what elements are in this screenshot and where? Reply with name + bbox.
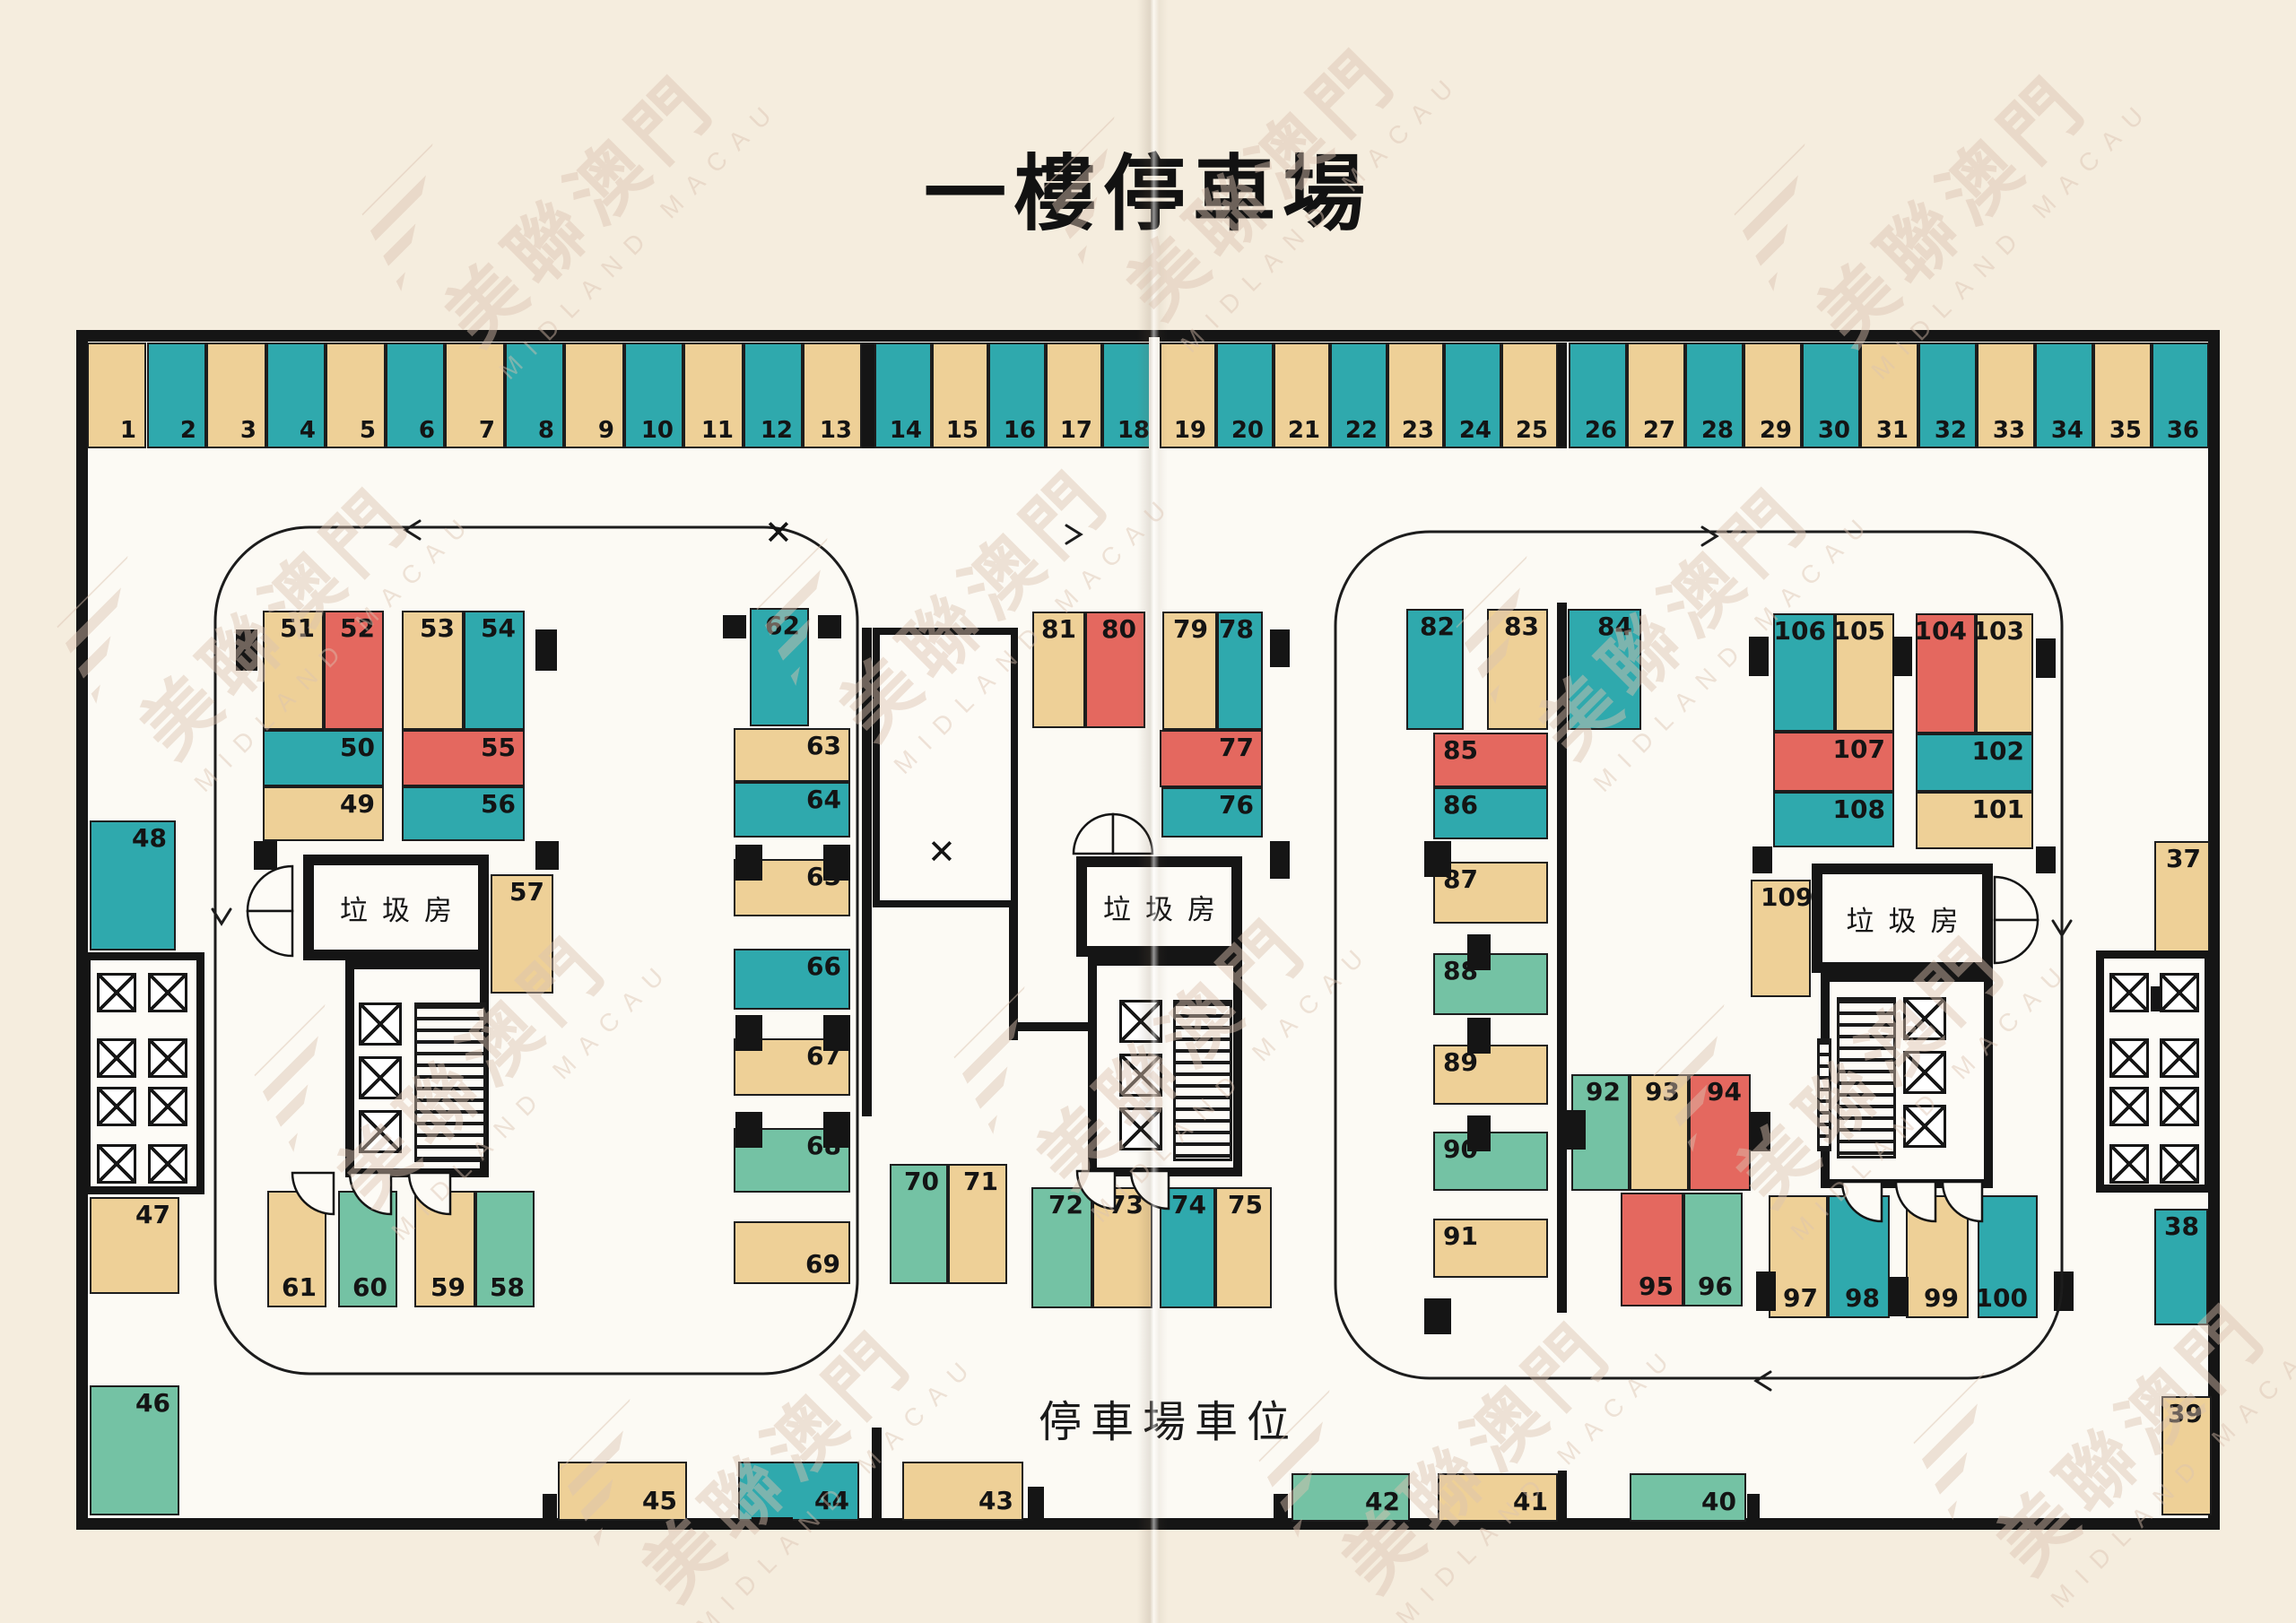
elevator-icon: [2109, 1038, 2149, 1078]
stall-109: 109: [1751, 880, 1811, 997]
stall-number-14: 14: [890, 419, 922, 442]
stall-number-7: 7: [479, 419, 495, 442]
stall-66: 66: [734, 949, 850, 1010]
stall-103: 103: [1976, 613, 2033, 733]
stall-59: 59: [414, 1191, 475, 1307]
elevator-icon: [359, 1002, 402, 1046]
midland-logo-icon: [1734, 143, 1844, 291]
elevator-icon: [97, 1038, 136, 1078]
stall-number-80: 80: [1101, 617, 1136, 642]
stall-39: 39: [2161, 1396, 2212, 1515]
stall-number-52: 52: [340, 616, 375, 641]
column-marker: [1756, 1271, 1776, 1311]
garbage-room-label: 垃圾房: [1832, 898, 1973, 939]
stall-29: 29: [1744, 343, 1802, 448]
stall-56: 56: [402, 786, 525, 841]
stall-number-35: 35: [2109, 419, 2142, 442]
column-marker: [1467, 934, 1491, 970]
stall-number-83: 83: [1504, 614, 1539, 639]
stall-number-60: 60: [352, 1275, 387, 1300]
stall-number-4: 4: [300, 419, 316, 442]
stall-number-39: 39: [2168, 1402, 2203, 1427]
stall-number-98: 98: [1845, 1286, 1880, 1311]
garbage-room: 垃圾房: [1812, 864, 1993, 973]
stall-84: 84: [1568, 609, 1641, 730]
stall-number-32: 32: [1935, 419, 1967, 442]
stall-55: 55: [402, 730, 525, 786]
stall-number-50: 50: [340, 735, 375, 760]
wall-segment: [1009, 907, 1018, 1040]
stall-70: 70: [890, 1164, 948, 1284]
stall-42: 42: [1291, 1473, 1410, 1522]
stall-number-103: 103: [1972, 619, 2024, 644]
stall-number-97: 97: [1783, 1286, 1818, 1311]
column-marker: [2036, 638, 2056, 678]
stall-90: 90: [1433, 1132, 1548, 1191]
stall-number-48: 48: [132, 826, 167, 851]
midland-watermark: 美聯澳門MIDLAND MACAU: [1725, 0, 2159, 386]
stall-46: 46: [90, 1385, 179, 1515]
stall-number-56: 56: [481, 792, 516, 817]
elevator-icon: [97, 1144, 136, 1184]
stall-51: 51: [263, 611, 324, 730]
stall-number-1: 1: [120, 419, 136, 442]
stall-107: 107: [1773, 732, 1894, 792]
wall-segment: [862, 628, 872, 1116]
stall-number-72: 72: [1048, 1193, 1083, 1218]
stall-24: 24: [1444, 343, 1501, 448]
stall-28: 28: [1685, 343, 1744, 448]
stall-number-34: 34: [2051, 419, 2083, 442]
stall-number-69: 69: [805, 1252, 840, 1277]
stall-74: 74: [1160, 1187, 1215, 1308]
column-marker: [1749, 1112, 1770, 1151]
stall-12: 12: [744, 343, 803, 448]
scanned-floorplan-page: 一樓停車場 停車場車位 1234567891011121314151617181…: [0, 0, 2296, 1623]
stall-81: 81: [1032, 612, 1085, 728]
stall-number-47: 47: [135, 1202, 170, 1228]
stall-number-85: 85: [1443, 738, 1478, 763]
column-marker: [236, 629, 257, 671]
stall-60: 60: [338, 1191, 397, 1307]
column-marker: [735, 845, 762, 881]
stall-number-42: 42: [1365, 1489, 1400, 1515]
stall-30: 30: [1802, 343, 1860, 448]
stall-82: 82: [1406, 609, 1464, 730]
column-marker: [823, 1112, 850, 1148]
stall-number-86: 86: [1443, 793, 1478, 818]
garbage-room-label: 垃圾房: [1089, 887, 1230, 927]
stall-number-75: 75: [1228, 1193, 1263, 1218]
wall-segment: [1557, 603, 1567, 1313]
column-marker: [1889, 1277, 1909, 1316]
stall-94: 94: [1689, 1074, 1751, 1191]
stall-20: 20: [1216, 343, 1274, 448]
stall-25: 25: [1501, 343, 1558, 448]
wall-segment: [1558, 343, 1567, 448]
stall-89: 89: [1433, 1045, 1548, 1105]
stall-number-27: 27: [1643, 419, 1675, 442]
stall-number-20: 20: [1231, 419, 1264, 442]
stall-number-62: 62: [765, 613, 800, 638]
stall-86: 86: [1433, 787, 1548, 839]
stall-108: 108: [1773, 792, 1894, 847]
stall-number-70: 70: [904, 1169, 939, 1194]
column-marker: [1566, 1110, 1586, 1150]
stall-91: 91: [1433, 1219, 1548, 1278]
stall-number-81: 81: [1041, 617, 1076, 642]
stall-6: 6: [386, 343, 445, 448]
elevator-icon: [1903, 1105, 1946, 1148]
stall-number-51: 51: [280, 616, 315, 641]
stall-73: 73: [1092, 1187, 1152, 1308]
stall-number-45: 45: [642, 1488, 677, 1514]
column-marker: [1028, 1487, 1044, 1521]
stall-number-61: 61: [282, 1275, 317, 1300]
stall-number-54: 54: [481, 616, 516, 641]
column-marker: [1467, 1018, 1491, 1054]
elevator-icon: [2160, 1087, 2199, 1126]
stall-83: 83: [1487, 609, 1548, 730]
stall-number-101: 101: [1972, 797, 2024, 822]
stall-number-96: 96: [1698, 1274, 1733, 1299]
column-marker: [2036, 846, 2056, 873]
garbage-room: 垃圾房: [303, 855, 489, 960]
elevator-icon: [1903, 1051, 1946, 1094]
stall-number-38: 38: [2164, 1214, 2199, 1239]
stair-hatch: [1817, 1038, 1831, 1151]
stall-number-49: 49: [340, 792, 375, 817]
stall-48: 48: [90, 820, 176, 950]
stall-number-29: 29: [1760, 419, 1792, 442]
stall-38: 38: [2154, 1209, 2208, 1325]
stall-number-41: 41: [1513, 1489, 1548, 1515]
stall-number-11: 11: [701, 419, 734, 442]
stall-95: 95: [1621, 1193, 1683, 1306]
stall-number-24: 24: [1459, 419, 1492, 442]
garbage-room: 垃圾房: [1076, 856, 1242, 957]
stall-105: 105: [1835, 613, 1894, 732]
stall-number-19: 19: [1174, 419, 1206, 442]
stall-80: 80: [1085, 612, 1145, 728]
parking-area-label: 停車場車位: [1039, 1386, 1299, 1449]
stall-93: 93: [1630, 1074, 1689, 1191]
stall-number-82: 82: [1420, 614, 1455, 639]
stall-number-55: 55: [481, 735, 516, 760]
stall-45: 45: [558, 1462, 687, 1521]
stall-97: 97: [1769, 1195, 1828, 1318]
elevator-icon: [148, 973, 187, 1012]
stall-72: 72: [1031, 1187, 1092, 1308]
stall-27: 27: [1627, 343, 1685, 448]
lane-x-mark: ✕: [927, 832, 963, 868]
watermark-cjk-text: 美聯澳門: [417, 45, 737, 365]
stall-33: 33: [1977, 343, 2035, 448]
stall-47: 47: [90, 1197, 179, 1294]
stall-96: 96: [1683, 1193, 1743, 1306]
page-title: 一樓停車場: [924, 127, 1372, 247]
stall-number-53: 53: [420, 616, 455, 641]
stall-79: 79: [1162, 612, 1217, 730]
stall-number-21: 21: [1288, 419, 1320, 442]
elevator-icon: [2160, 973, 2199, 1012]
stall-63: 63: [734, 728, 850, 782]
stall-number-25: 25: [1516, 419, 1548, 442]
stall-104: 104: [1916, 613, 1976, 733]
elevator-icon: [2160, 1144, 2199, 1184]
column-marker: [818, 615, 841, 638]
stall-99: 99: [1906, 1195, 1969, 1318]
column-marker: [1747, 1494, 1760, 1523]
stall-number-102: 102: [1972, 739, 2024, 764]
stall-101: 101: [1916, 792, 2033, 849]
elevator-icon: [2109, 1087, 2149, 1126]
stall-number-104: 104: [1915, 619, 1967, 644]
stall-36: 36: [2152, 343, 2209, 448]
column-marker: [1749, 637, 1769, 676]
stall-number-109: 109: [1761, 885, 1813, 910]
stall-number-40: 40: [1701, 1489, 1736, 1515]
stall-31: 31: [1860, 343, 1918, 448]
stall-number-17: 17: [1060, 419, 1092, 442]
elevator-icon: [1119, 1000, 1162, 1043]
stall-3: 3: [206, 343, 266, 448]
stall-19: 19: [1160, 343, 1216, 448]
stall-41: 41: [1438, 1473, 1558, 1522]
elevator-icon: [2160, 1038, 2199, 1078]
stall-number-93: 93: [1645, 1080, 1680, 1105]
stall-number-99: 99: [1924, 1286, 1959, 1311]
column-marker: [535, 629, 557, 671]
stall-85: 85: [1433, 733, 1548, 787]
midland-watermark: 美聯澳門MIDLAND MACAU: [352, 0, 787, 386]
garbage-room-label: 垃圾房: [326, 888, 466, 928]
stall-number-107: 107: [1833, 737, 1885, 762]
stall-10: 10: [624, 343, 683, 448]
stall-78: 78: [1217, 612, 1263, 730]
stall-number-6: 6: [419, 419, 435, 442]
stall-number-84: 84: [1597, 614, 1632, 639]
stall-1: 1: [87, 343, 146, 448]
stall-number-105: 105: [1833, 619, 1885, 644]
stall-number-100: 100: [1976, 1286, 2028, 1311]
elevator-icon: [1119, 1107, 1162, 1150]
column-marker: [823, 845, 850, 881]
stall-number-92: 92: [1586, 1080, 1621, 1105]
stall-number-77: 77: [1219, 735, 1254, 760]
stall-number-28: 28: [1701, 419, 1734, 442]
stall-number-66: 66: [806, 954, 841, 979]
stall-50: 50: [263, 730, 384, 786]
stall-13: 13: [803, 343, 862, 448]
stall-57: 57: [491, 874, 553, 994]
stall-number-74: 74: [1171, 1193, 1206, 1218]
stall-77: 77: [1160, 730, 1263, 787]
column-marker: [1892, 637, 1912, 676]
stall-number-64: 64: [806, 787, 841, 812]
stall-number-89: 89: [1443, 1050, 1478, 1075]
midland-logo-icon: [361, 143, 472, 291]
column-marker: [1274, 1494, 1288, 1523]
column-marker: [535, 841, 559, 870]
elevator-icon: [359, 1110, 402, 1153]
stall-number-3: 3: [240, 419, 257, 442]
stall-number-79: 79: [1173, 617, 1208, 642]
column-marker: [735, 1015, 762, 1051]
stall-43: 43: [902, 1462, 1023, 1521]
stall-100: 100: [1978, 1195, 2038, 1318]
stall-17: 17: [1046, 343, 1102, 448]
stall-4: 4: [266, 343, 326, 448]
wall-segment: [1558, 1471, 1567, 1523]
stall-5: 5: [326, 343, 386, 448]
column-marker: [723, 615, 746, 638]
elevator-icon: [1119, 1054, 1162, 1097]
stall-number-95: 95: [1639, 1274, 1674, 1299]
stall-number-16: 16: [1004, 419, 1036, 442]
column-marker: [1467, 1115, 1491, 1151]
wall-segment: [872, 1428, 882, 1523]
stall-8: 8: [505, 343, 564, 448]
stall-number-31: 31: [1876, 419, 1909, 442]
stall-number-78: 78: [1219, 617, 1254, 642]
stall-11: 11: [683, 343, 744, 448]
stall-53: 53: [402, 611, 464, 730]
stall-number-9: 9: [598, 419, 614, 442]
stall-15: 15: [932, 343, 988, 448]
elevator-icon: [148, 1087, 187, 1126]
stall-number-94: 94: [1707, 1080, 1742, 1105]
elevator-icon: [359, 1056, 402, 1099]
column-marker: [254, 841, 277, 870]
stall-number-22: 22: [1345, 419, 1378, 442]
stall-number-15: 15: [946, 419, 978, 442]
stall-number-44: 44: [814, 1488, 849, 1514]
elevator-icon: [97, 973, 136, 1012]
stall-64: 64: [734, 782, 850, 838]
stall-number-12: 12: [761, 419, 793, 442]
column-marker: [823, 1015, 850, 1051]
stall-26: 26: [1569, 343, 1627, 448]
stall-number-13: 13: [820, 419, 852, 442]
stall-number-71: 71: [963, 1169, 998, 1194]
stall-62: 62: [750, 608, 809, 726]
stall-9: 9: [564, 343, 624, 448]
stall-number-26: 26: [1585, 419, 1617, 442]
stall-number-63: 63: [806, 733, 841, 759]
stall-35: 35: [2093, 343, 2152, 448]
stall-number-2: 2: [180, 419, 196, 442]
column-marker: [1424, 841, 1451, 877]
stall-number-73: 73: [1109, 1193, 1144, 1218]
stall-69: 69: [734, 1221, 850, 1284]
column-marker: [752, 1517, 793, 1528]
stall-7: 7: [445, 343, 505, 448]
stall-number-18: 18: [1118, 419, 1150, 442]
stall-number-57: 57: [509, 880, 544, 905]
stall-32: 32: [1918, 343, 1977, 448]
column-marker: [735, 1112, 762, 1148]
wall-segment: [1018, 1022, 1088, 1031]
stall-88: 88: [1433, 953, 1548, 1015]
elevator-icon: [97, 1087, 136, 1126]
watermark-cjk-text: 美聯澳門: [1789, 45, 2109, 365]
stall-number-10: 10: [641, 419, 674, 442]
stall-76: 76: [1161, 787, 1263, 838]
stall-40: 40: [1630, 1473, 1746, 1522]
stall-number-43: 43: [978, 1488, 1013, 1514]
stall-number-23: 23: [1402, 419, 1434, 442]
stall-number-37: 37: [2166, 846, 2201, 872]
elevator-icon: [2109, 1144, 2149, 1184]
column-marker: [1270, 629, 1290, 667]
stall-21: 21: [1274, 343, 1330, 448]
stall-number-33: 33: [1993, 419, 2025, 442]
stall-number-8: 8: [538, 419, 554, 442]
stair-hatch: [414, 1002, 486, 1162]
stall-14: 14: [874, 343, 932, 448]
stall-16: 16: [988, 343, 1046, 448]
column-marker: [1270, 841, 1290, 879]
stall-number-36: 36: [2167, 419, 2199, 442]
stall-52: 52: [324, 611, 384, 730]
elevator-icon: [148, 1144, 187, 1184]
elevator-icon: [148, 1038, 187, 1078]
stall-number-108: 108: [1833, 797, 1885, 822]
wall-segment: [862, 343, 874, 448]
stall-44: 44: [738, 1462, 859, 1521]
stall-number-58: 58: [490, 1275, 525, 1300]
stair-hatch: [1837, 997, 1896, 1159]
stall-75: 75: [1215, 1187, 1272, 1308]
stall-number-106: 106: [1774, 619, 1826, 644]
stall-34: 34: [2035, 343, 2093, 448]
stall-102: 102: [1916, 733, 2033, 792]
stall-22: 22: [1330, 343, 1387, 448]
elevator-icon: [1903, 997, 1946, 1040]
column-marker: [1424, 1298, 1451, 1334]
stall-number-5: 5: [360, 419, 376, 442]
stall-number-76: 76: [1219, 793, 1254, 818]
stair-hatch: [1173, 1000, 1232, 1161]
stall-71: 71: [948, 1164, 1007, 1284]
stall-number-30: 30: [1818, 419, 1850, 442]
stall-54: 54: [464, 611, 525, 730]
stall-49: 49: [263, 786, 384, 841]
page-fold-highlight: [1149, 337, 1160, 450]
stall-106: 106: [1773, 613, 1835, 732]
column-marker: [2054, 1271, 2074, 1311]
stall-number-46: 46: [135, 1391, 170, 1416]
stall-61: 61: [267, 1191, 326, 1307]
stall-number-59: 59: [430, 1275, 465, 1300]
column-marker: [543, 1494, 557, 1523]
stall-98: 98: [1828, 1195, 1890, 1318]
elevator-icon: [2109, 973, 2149, 1012]
stall-number-91: 91: [1443, 1224, 1478, 1249]
stall-23: 23: [1387, 343, 1444, 448]
lane-x-mark: ✕: [764, 513, 800, 549]
stall-2: 2: [147, 343, 206, 448]
stall-58: 58: [475, 1191, 535, 1307]
column-marker: [1752, 846, 1772, 873]
